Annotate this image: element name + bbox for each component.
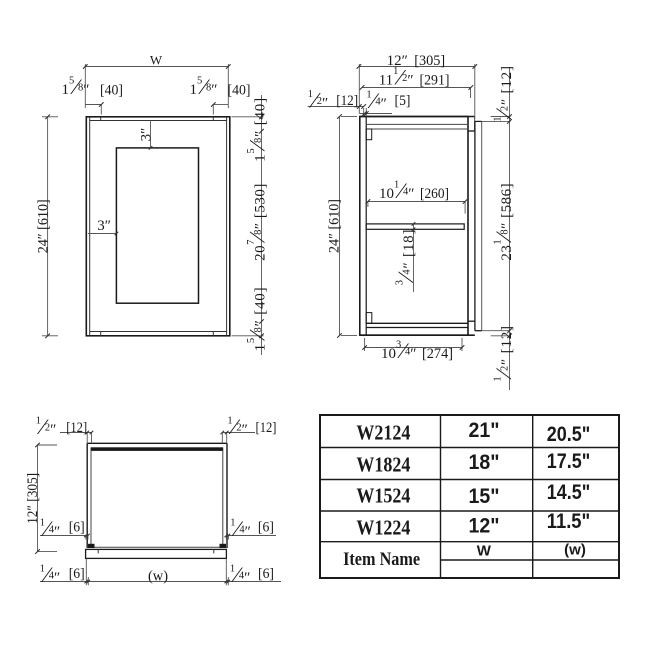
svg-text:[12]: [12] (256, 420, 277, 436)
svg-text:[274]: [274] (422, 346, 453, 362)
svg-text:1⁄4​″: 1⁄4​″ (366, 88, 387, 113)
svg-text:W1224: W1224 (356, 515, 410, 539)
svg-text:(w): (w) (564, 542, 586, 559)
svg-text:17.5": 17.5" (547, 450, 591, 473)
svg-text:1⁄4​″: 1⁄4​″ (40, 562, 61, 587)
svg-text:1⁄2​″: 1⁄2​″ (227, 414, 248, 439)
svg-text:15⁄8​″ [40]: 15⁄8​″ [40] (245, 97, 270, 162)
svg-text:15⁄8​″: 15⁄8​″ (190, 74, 218, 99)
svg-text:3″: 3″ (138, 128, 154, 142)
svg-text:[260]: [260] (420, 186, 449, 202)
svg-text:W: W (150, 53, 163, 68)
svg-text:[6]: [6] (69, 566, 85, 582)
svg-text:103⁄4​″: 103⁄4​″ (381, 338, 417, 363)
svg-text:1⁄4​″: 1⁄4​″ (230, 516, 251, 541)
svg-text:[291]: [291] (420, 73, 450, 89)
svg-text:18": 18" (469, 451, 500, 474)
svg-text:20.5": 20.5" (547, 423, 591, 446)
svg-text:12″ [305]: 12″ [305] (25, 473, 41, 524)
svg-text:15⁄8​″ [40]: 15⁄8​″ [40] (245, 287, 270, 352)
svg-text:111⁄2​″: 111⁄2​″ (379, 65, 414, 90)
svg-text:231⁄8​″ [586]: 231⁄8​″ [586] (491, 183, 516, 261)
svg-text:14.5": 14.5" (547, 481, 591, 504)
svg-text:12": 12" (469, 514, 500, 537)
svg-text:1⁄2​″ [12]: 1⁄2​″ [12] (491, 325, 516, 381)
svg-text:21": 21" (469, 419, 500, 442)
svg-text:W1824: W1824 (356, 453, 410, 477)
svg-text:[40]: [40] (228, 83, 251, 99)
svg-text:W: W (477, 543, 492, 560)
svg-text:(w): (w) (148, 569, 168, 585)
svg-text:[6]: [6] (69, 520, 85, 536)
svg-text:1⁄4​″: 1⁄4​″ (230, 562, 251, 587)
svg-text:101⁄4​″: 101⁄4​″ (379, 178, 415, 203)
svg-text:[5]: [5] (395, 93, 411, 109)
svg-text:1⁄2​″ [12]: 1⁄2​″ [12] (491, 65, 516, 121)
svg-text:[6]: [6] (258, 566, 274, 582)
svg-text:W2124: W2124 (356, 421, 410, 445)
svg-text:[305]: [305] (414, 53, 445, 69)
svg-text:207⁄8​″ [530]: 207⁄8​″ [530] (245, 183, 270, 261)
svg-text:Item Name: Item Name (343, 549, 420, 570)
svg-text:1⁄4​″: 1⁄4​″ (40, 516, 61, 541)
svg-text:[40]: [40] (100, 83, 123, 99)
svg-text:[12]: [12] (336, 93, 358, 109)
svg-text:W1524: W1524 (356, 484, 410, 508)
svg-text:24″ [610]: 24″ [610] (35, 199, 51, 253)
svg-text:11.5": 11.5" (547, 510, 591, 533)
svg-text:15": 15" (469, 485, 500, 508)
svg-text:1⁄2​″: 1⁄2​″ (308, 88, 329, 113)
svg-text:[12]: [12] (66, 420, 87, 436)
svg-text:3⁄4​″ [18]: 3⁄4​″ [18] (393, 229, 418, 285)
svg-text:1⁄2​″: 1⁄2​″ (36, 414, 57, 439)
svg-text:24″ [610]: 24″ [610] (327, 199, 343, 253)
svg-text:3″: 3″ (97, 218, 111, 234)
svg-text:[6]: [6] (258, 520, 274, 536)
